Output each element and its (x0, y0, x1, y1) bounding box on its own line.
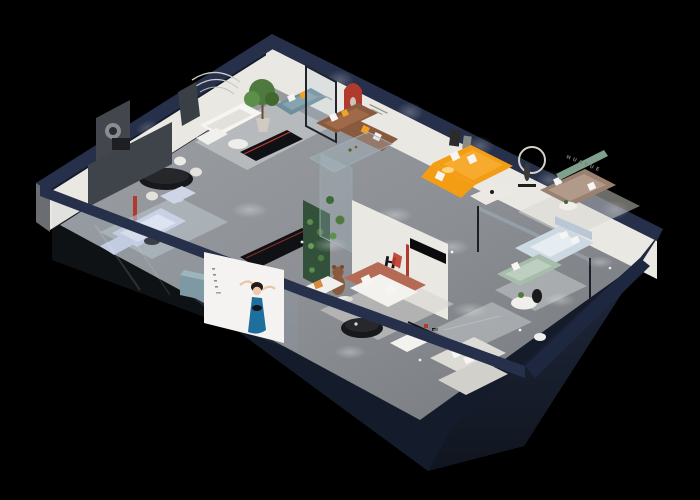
table-plant (518, 292, 524, 298)
dress-belt (252, 305, 262, 311)
spotlight-glow (232, 202, 268, 218)
bear-ear (340, 265, 344, 269)
dining-chair (190, 168, 202, 177)
woman-face (253, 287, 261, 295)
small-white-chair (534, 333, 546, 341)
table-vase (490, 190, 494, 194)
tiny-text-mark (213, 274, 216, 276)
coffee-table (228, 139, 248, 149)
wall-plant (307, 219, 313, 225)
spotlight-glow (377, 207, 413, 223)
spotlight-glow (312, 237, 348, 253)
column-plant (336, 216, 345, 225)
wall-glow (396, 102, 424, 122)
bear-ear (332, 265, 336, 269)
spotlight-glow (544, 293, 576, 307)
column-plant (326, 196, 334, 204)
sculpture-figure (524, 163, 530, 181)
tree-trunk (262, 104, 264, 119)
tree-canopy (265, 92, 279, 106)
wall-plant (309, 267, 315, 273)
spotlight-dot (519, 329, 522, 332)
spotlight-glow (452, 302, 488, 318)
round-side-table (559, 202, 577, 211)
spotlight-dot (451, 251, 454, 254)
tiny-text-mark (215, 286, 218, 288)
spotlight-dot (419, 359, 422, 362)
tiny-text-mark (212, 268, 215, 270)
table-decor (354, 322, 357, 325)
shelf-red-item (424, 324, 428, 328)
spotlight-dot (609, 267, 612, 270)
sofa-light-glow (442, 167, 454, 173)
wall-plant (318, 255, 324, 261)
sculpture-base (518, 184, 536, 187)
bottle-decor (348, 148, 351, 151)
wall-tv (112, 138, 130, 150)
round-wall-art-center (109, 127, 117, 135)
apartment-3d-render: HUAYUE (0, 0, 700, 500)
floorplan-svg: HUAYUE (0, 0, 700, 500)
spotlight-glow (586, 256, 614, 268)
dining-chair (146, 192, 158, 201)
tiny-text-mark (216, 292, 221, 294)
table-plant (564, 200, 568, 204)
spotlight-dot (301, 241, 304, 244)
spotlight-glow (334, 345, 366, 359)
black-round-art (532, 289, 542, 303)
bottle-decor (355, 146, 358, 149)
tree-canopy (244, 91, 260, 107)
tiny-text-mark (214, 280, 217, 282)
dining-chair (174, 157, 186, 166)
